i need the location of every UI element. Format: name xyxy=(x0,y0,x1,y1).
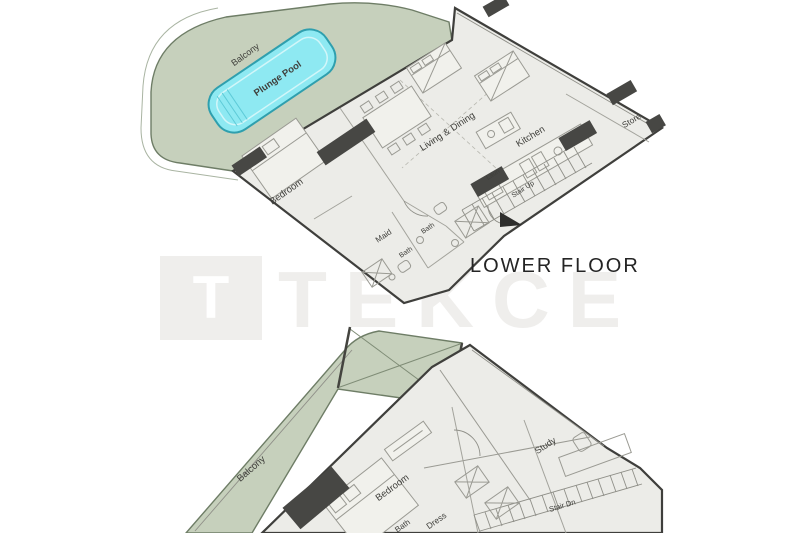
floor-caption: LOWER FLOOR xyxy=(470,255,640,278)
lower-plan: Balcony Bedroom Dress Study Bath Stair D… xyxy=(186,327,662,533)
floor-plan-drawing: Plunge Pool Balcony xyxy=(0,0,800,533)
floor-plan-page: T TEKCE LOWER FLOOR Plunge Pool Balcony xyxy=(0,0,800,533)
